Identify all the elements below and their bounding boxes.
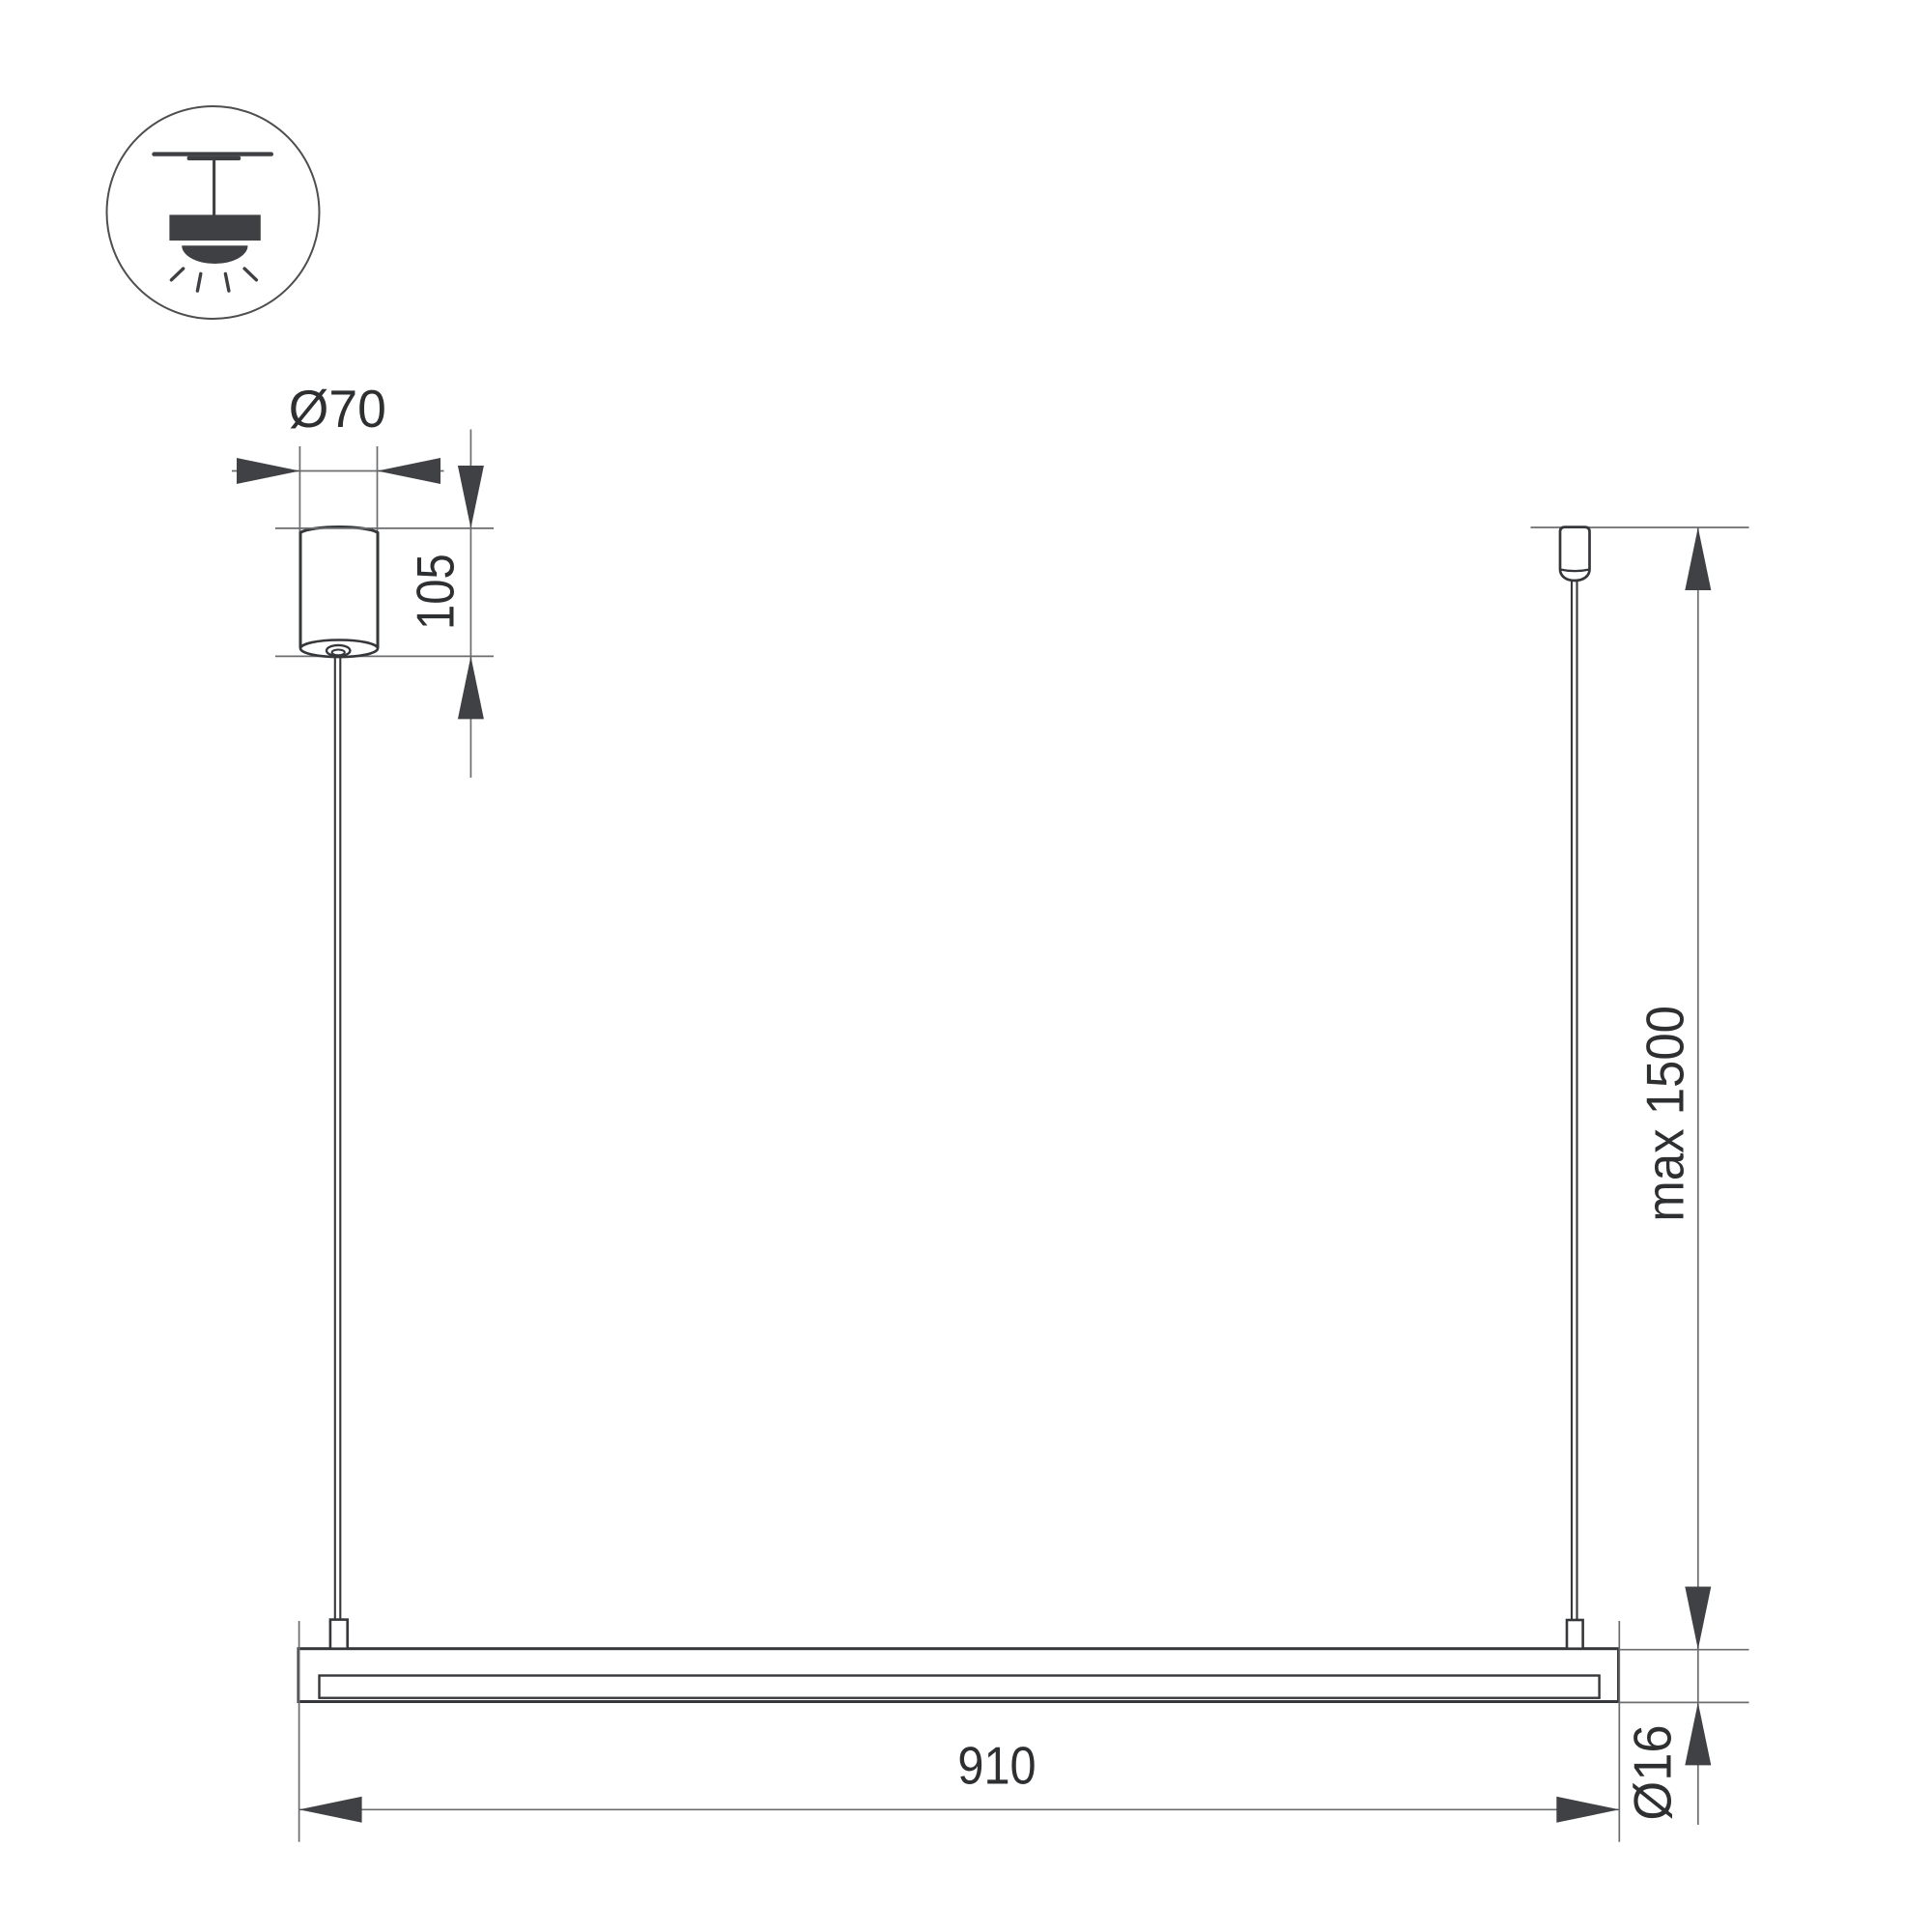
svg-text:Ø16: Ø16 [1623, 1724, 1683, 1820]
svg-text:max 1500: max 1500 [1635, 1006, 1695, 1222]
svg-text:910: 910 [957, 1736, 1036, 1796]
svg-text:Ø70: Ø70 [289, 379, 386, 439]
svg-text:105: 105 [406, 554, 466, 630]
